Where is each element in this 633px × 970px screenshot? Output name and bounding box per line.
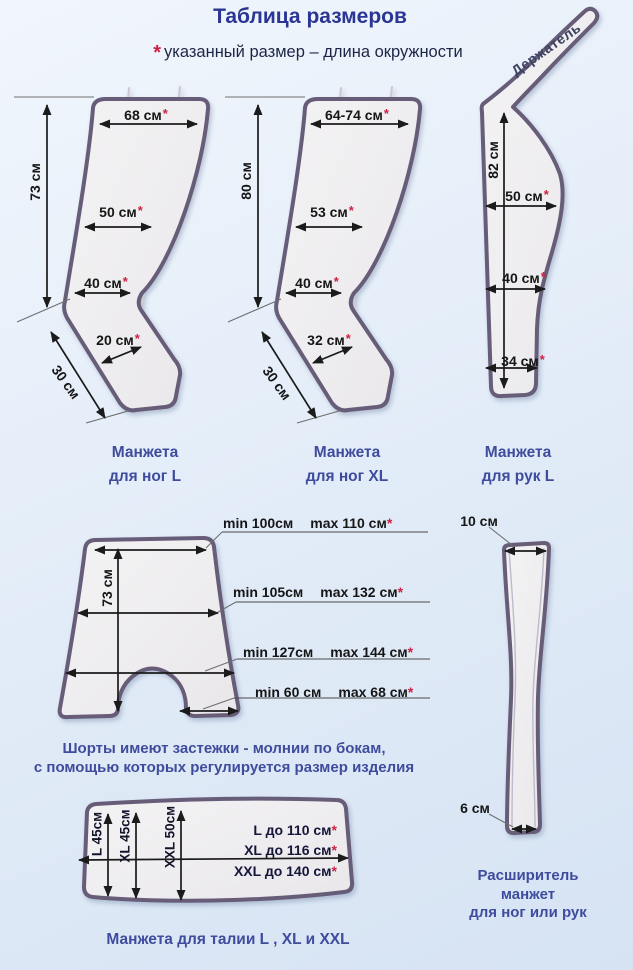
leg-xl-mid-width-label: 53 см* <box>310 204 354 220</box>
waist-row-xl: XL до 116 см* <box>244 842 337 858</box>
leg-xl-height-label: 80 см <box>238 162 254 200</box>
leg-l-height-label: 73 см <box>27 163 43 201</box>
waist-col-xxl-label: XXL 50см <box>163 806 178 868</box>
shorts-shape <box>60 538 239 717</box>
waist-row-l: L до 110 см* <box>253 822 337 838</box>
arm-top-width-label: 50 см* <box>505 188 549 204</box>
arm-caption: Манжетадля рук L <box>482 441 554 489</box>
extender-bottom-width-label: 6 см <box>460 800 490 816</box>
leg-xl-ankle-width-label: 32 см* <box>307 332 351 348</box>
leg-xl-caption: Манжетадля ног XL <box>306 441 388 489</box>
leg-xl-top-width-label: 64-74 см* <box>325 107 389 123</box>
arm-height-label: 82 см <box>485 141 501 179</box>
asterisk-icon: * <box>153 42 161 64</box>
shorts-height-label: 73 см <box>99 569 115 607</box>
waist-col-l-label: L 45см <box>90 812 105 856</box>
waist-col-xl-label: XL 45см <box>118 809 133 862</box>
shorts-caption: Шорты имеют застежки - молнии по бокам,с… <box>34 739 414 777</box>
leg-l-ankle-width-label: 20 см* <box>96 332 140 348</box>
arm-mid-width-label: 40 см* <box>502 270 546 286</box>
arm-low-width-label: 34 см* <box>501 353 545 369</box>
size-chart-page: Таблица размеров *указанный размер – дли… <box>0 0 633 970</box>
page-title: Таблица размеров <box>0 5 620 29</box>
leg-cuff-l-shape <box>64 87 208 410</box>
shorts-row-mid: min 105смmax 132 см* <box>233 584 403 600</box>
leg-l-low-width-label: 40 см* <box>84 275 128 291</box>
extender-caption: Расширительманжетдля ног или рук <box>469 867 587 923</box>
waist-caption: Манжета для талии L , XL и XXL <box>106 928 349 952</box>
leg-l-caption: Манжетадля ног L <box>109 441 181 489</box>
leg-l-top-width-label: 68 см* <box>124 107 168 123</box>
leg-xl-low-width-label: 40 см* <box>295 275 339 291</box>
leg-l-mid-width-label: 50 см* <box>99 204 143 220</box>
shorts-row-low: min 127смmax 144 см* <box>243 644 413 660</box>
waist-row-xxl: XXL до 140 см* <box>234 863 337 879</box>
shorts-row-leg: min 60 смmax 68 см* <box>255 684 413 700</box>
shorts-row-hip: min 100смmax 110 см* <box>223 515 392 531</box>
extender-top-width-label: 10 см <box>460 513 498 529</box>
leg-cuff-xl-shape <box>276 87 420 410</box>
page-note-text: указанный размер – длина окружности <box>164 43 463 61</box>
